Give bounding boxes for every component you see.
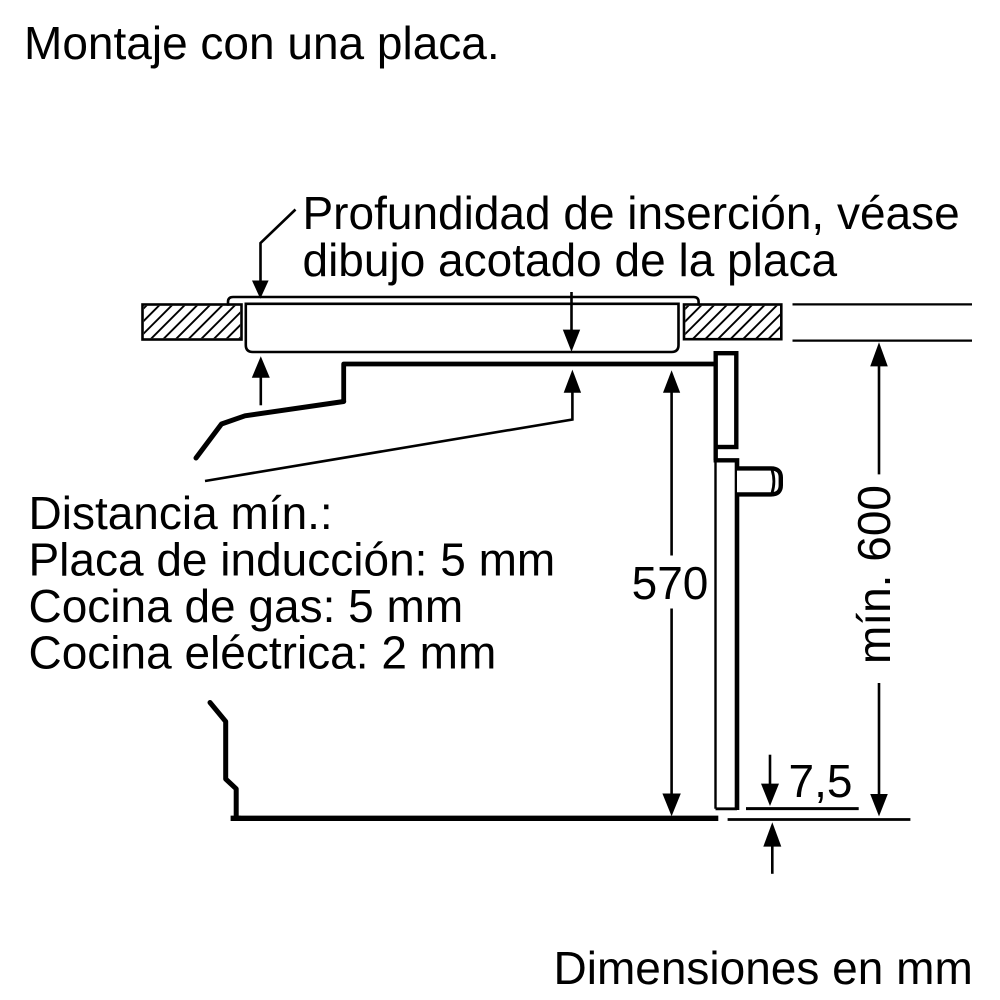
svg-text:Cocina de gas: 5 mm: Cocina de gas: 5 mm xyxy=(29,580,464,632)
svg-text:Profundidad de inserción, véas: Profundidad de inserción, véase xyxy=(303,187,960,239)
svg-text:Placa de inducción: 5 mm: Placa de inducción: 5 mm xyxy=(29,534,556,586)
svg-text:Cocina eléctrica: 2 mm: Cocina eléctrica: 2 mm xyxy=(29,627,497,679)
svg-text:Montaje con una placa.: Montaje con una placa. xyxy=(24,17,500,69)
svg-text:Distancia mín.:: Distancia mín.: xyxy=(29,487,333,539)
svg-text:Dimensiones en mm: Dimensiones en mm xyxy=(554,942,973,994)
svg-text:7,5: 7,5 xyxy=(789,755,853,807)
svg-text:570: 570 xyxy=(632,557,709,609)
svg-text:mín. 600: mín. 600 xyxy=(848,485,900,664)
svg-text:dibujo acotado de la placa: dibujo acotado de la placa xyxy=(303,234,838,286)
